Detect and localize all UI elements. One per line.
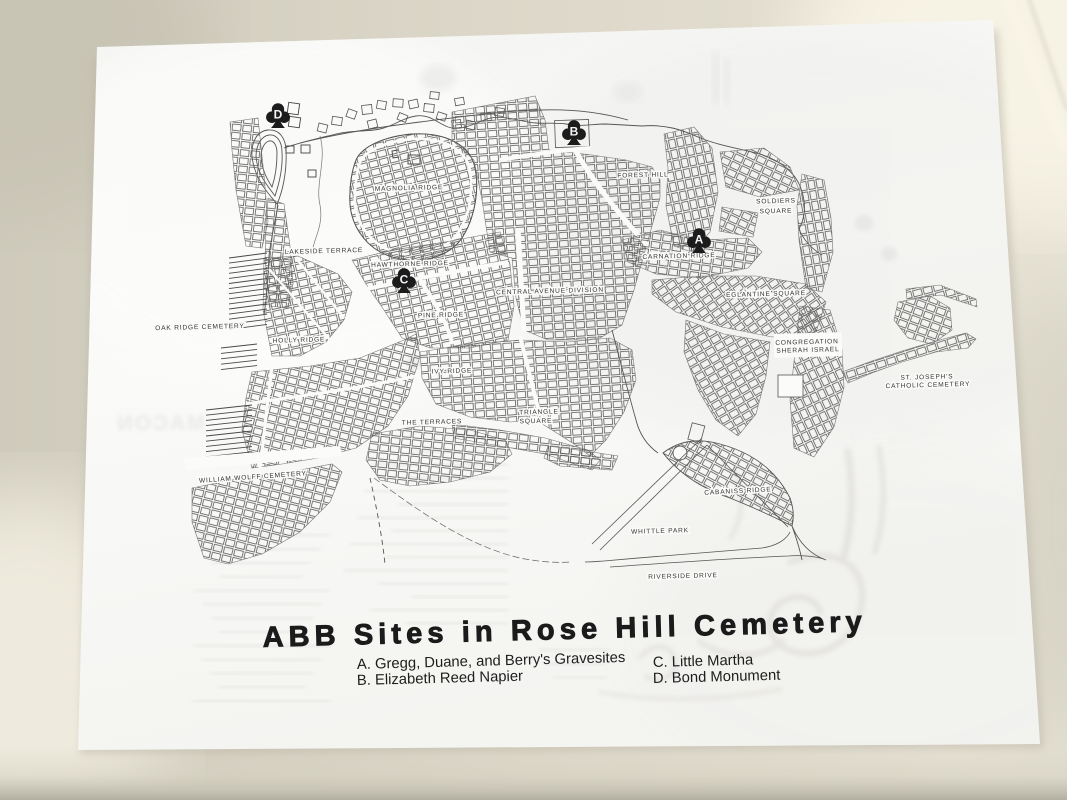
svg-text:SQUARE: SQUARE — [760, 208, 793, 216]
svg-text:IVY RIDGE: IVY RIDGE — [432, 367, 473, 375]
svg-text:C: C — [400, 273, 409, 287]
svg-text:MACON: MACON — [115, 412, 204, 435]
svg-text:HOLLY RIDGE: HOLLY RIDGE — [273, 336, 326, 344]
svg-text:D. Bond Monument: D. Bond Monument — [653, 668, 781, 687]
svg-text:B: B — [570, 125, 579, 139]
svg-text:FOREST HILL: FOREST HILL — [617, 171, 668, 179]
svg-text:A: A — [695, 233, 704, 247]
svg-text:PINE RIDGE: PINE RIDGE — [418, 311, 464, 319]
svg-text:TRIANGLE: TRIANGLE — [519, 408, 559, 416]
svg-text:D: D — [274, 108, 283, 122]
svg-text:ST. JOSEPH'S: ST. JOSEPH'S — [900, 373, 953, 381]
svg-text:SQUARE: SQUARE — [520, 418, 553, 426]
svg-text:SOLDIERS: SOLDIERS — [756, 197, 796, 205]
